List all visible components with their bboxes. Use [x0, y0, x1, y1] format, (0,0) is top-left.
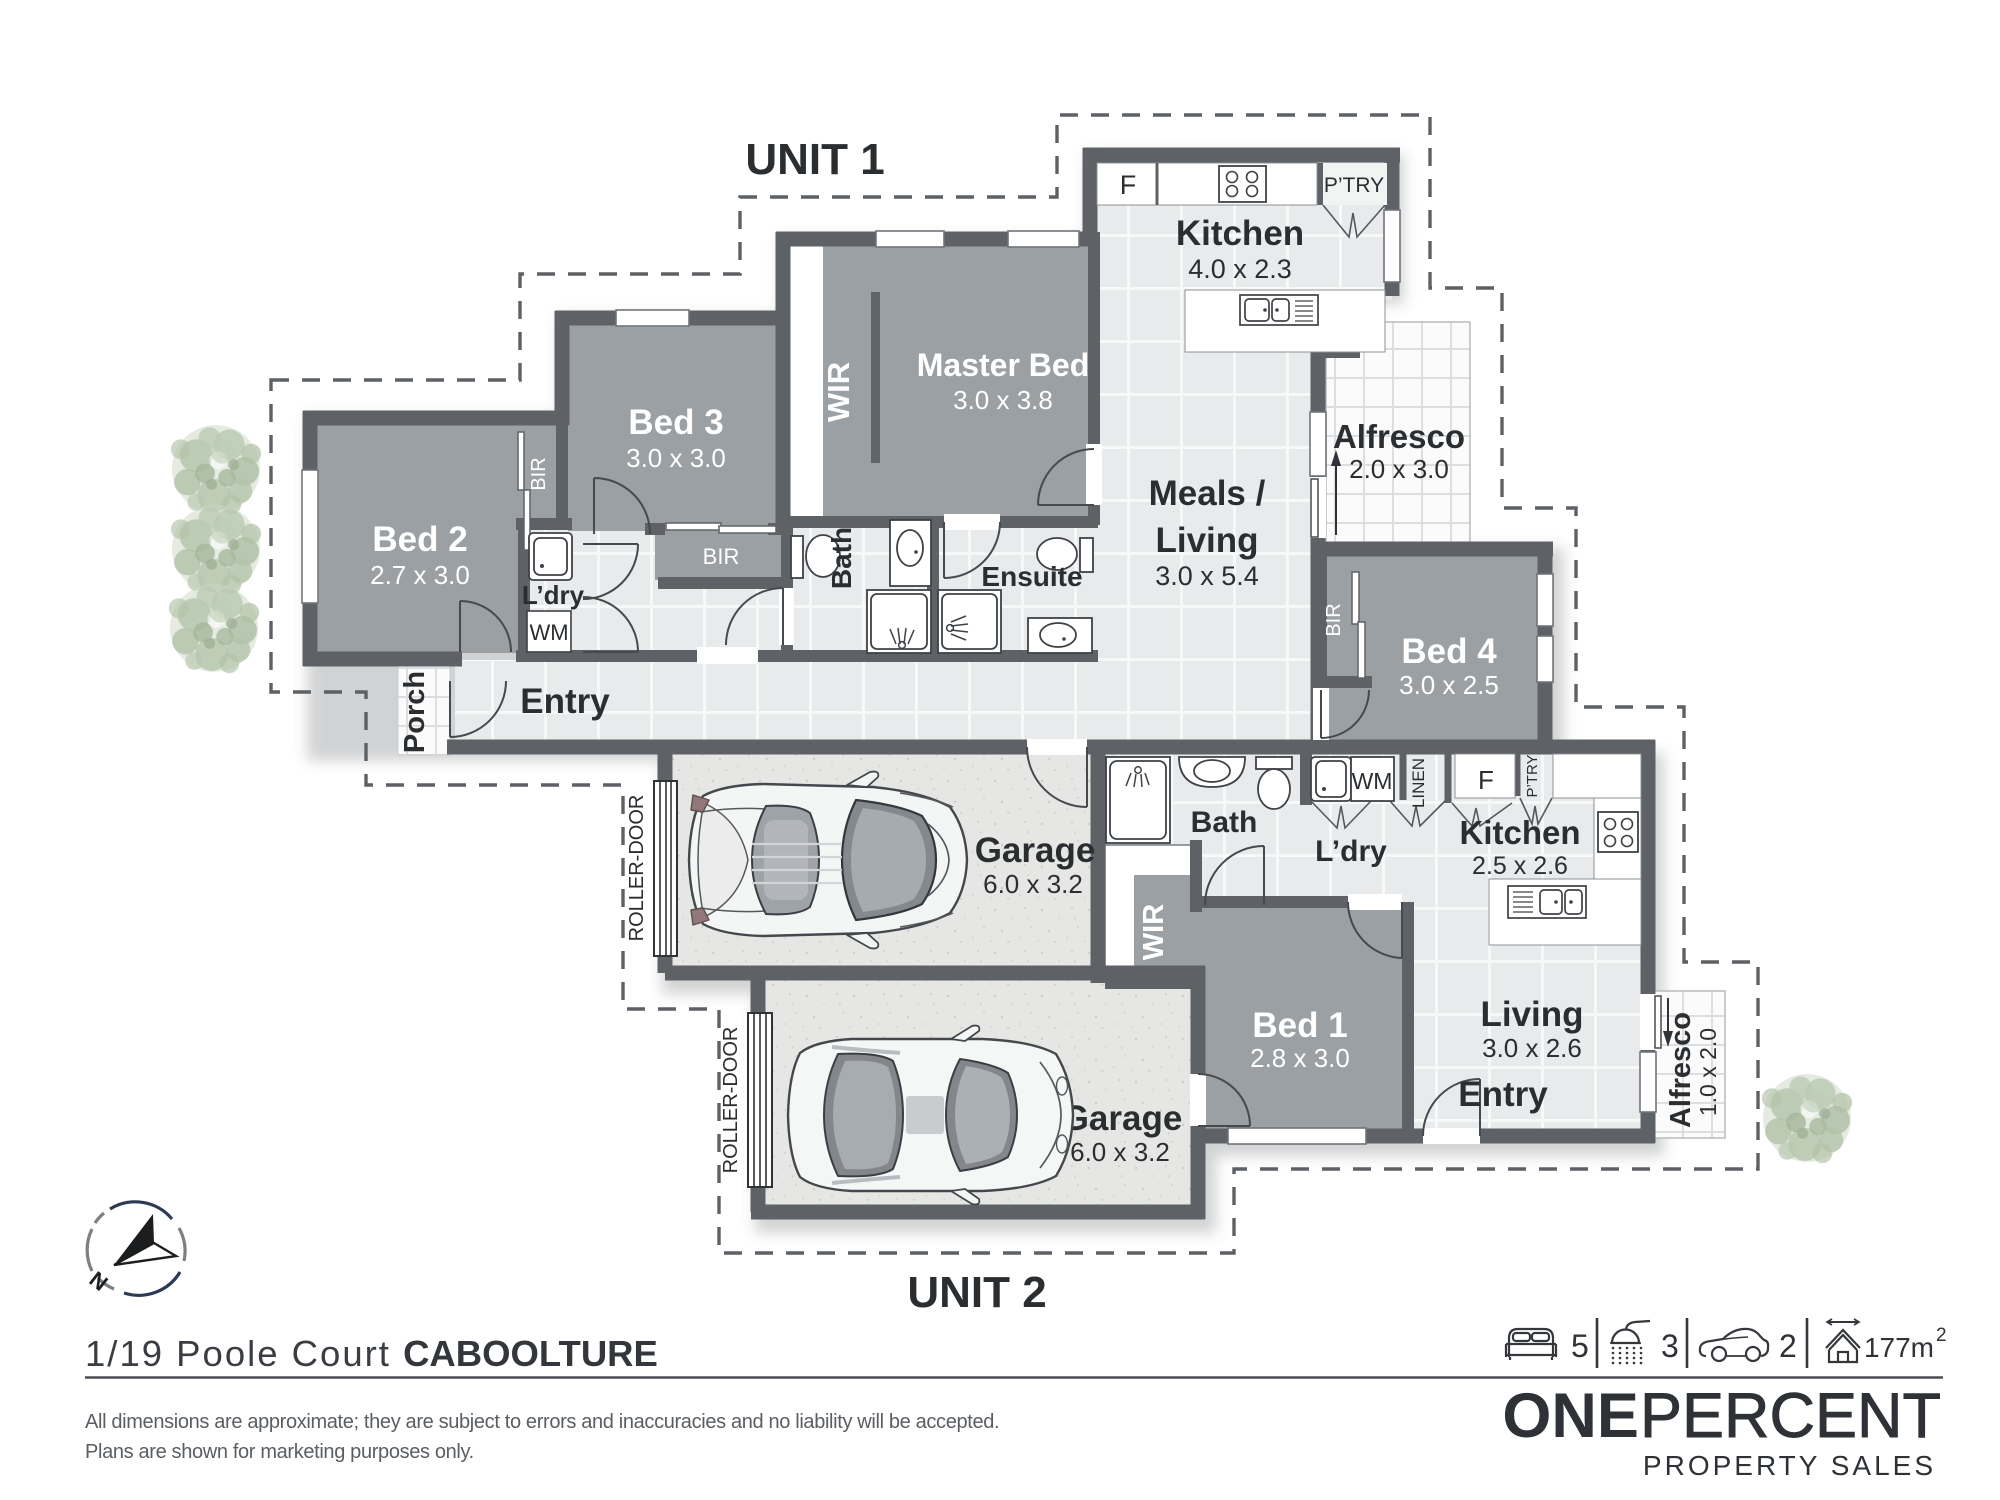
svg-text:ROLLER-DOOR: ROLLER-DOOR [720, 1027, 742, 1174]
svg-text:3.0 x 3.0: 3.0 x 3.0 [626, 443, 726, 473]
svg-text:1.0 x 2.0: 1.0 x 2.0 [1695, 1028, 1721, 1116]
svg-text:3.0 x 2.5: 3.0 x 2.5 [1399, 670, 1499, 700]
svg-text:Plans are shown for marketing: Plans are shown for marketing purposes o… [85, 1441, 474, 1463]
svg-text:WIR: WIR [1138, 904, 1170, 960]
svg-text:2.0 x 3.0: 2.0 x 3.0 [1349, 454, 1449, 484]
svg-text:2.7 x 3.0: 2.7 x 3.0 [370, 560, 470, 590]
svg-text:ONEPERCENT: ONEPERCENT [1502, 1381, 1941, 1451]
svg-text:Entry: Entry [1458, 1075, 1548, 1114]
svg-text:ROLLER-DOOR: ROLLER-DOOR [626, 795, 648, 942]
svg-text:Bed 2: Bed 2 [372, 520, 467, 559]
svg-text:3.0 x 5.4: 3.0 x 5.4 [1155, 561, 1259, 591]
svg-text:Bed 3: Bed 3 [628, 403, 723, 442]
svg-text:Alfresco: Alfresco [1665, 1012, 1697, 1128]
svg-text:BIR: BIR [528, 457, 550, 490]
svg-text:WIR: WIR [821, 362, 856, 422]
svg-text:L’dry: L’dry [522, 580, 585, 610]
svg-text:Entry: Entry [520, 682, 610, 721]
svg-text:Garage: Garage [975, 831, 1096, 870]
svg-text:6.0 x 3.2: 6.0 x 3.2 [1070, 1137, 1170, 1167]
svg-text:177m: 177m [1864, 1332, 1934, 1363]
svg-text:PROPERTY SALES: PROPERTY SALES [1643, 1450, 1936, 1481]
svg-text:LINEN: LINEN [1409, 758, 1428, 808]
svg-text:P’TRY: P’TRY [1324, 174, 1384, 197]
svg-text:Kitchen: Kitchen [1459, 814, 1580, 851]
svg-text:P’TRY: P’TRY [1524, 754, 1541, 797]
svg-text:Meals /: Meals / [1149, 474, 1266, 513]
svg-text:3.0 x 3.8: 3.0 x 3.8 [953, 385, 1053, 415]
svg-text:Master Bed: Master Bed [917, 347, 1090, 383]
svg-text:Bed 4: Bed 4 [1401, 632, 1497, 671]
svg-text:3: 3 [1661, 1328, 1679, 1364]
svg-text:WM: WM [1352, 768, 1393, 794]
svg-text:UNIT 1: UNIT 1 [745, 135, 884, 184]
svg-text:UNIT 2: UNIT 2 [907, 1268, 1046, 1317]
svg-text:2: 2 [1936, 1325, 1947, 1346]
svg-text:1/19 Poole Court CABOOLTURE: 1/19 Poole Court CABOOLTURE [85, 1333, 658, 1374]
svg-text:F: F [1478, 765, 1494, 795]
svg-text:F: F [1120, 170, 1137, 200]
svg-text:All dimensions are approximate: All dimensions are approximate; they are… [85, 1411, 999, 1433]
svg-text:2.5 x 2.6: 2.5 x 2.6 [1472, 852, 1568, 880]
svg-text:3.0 x 2.6: 3.0 x 2.6 [1482, 1033, 1582, 1063]
svg-text:5: 5 [1571, 1328, 1589, 1364]
svg-text:WM: WM [529, 620, 568, 645]
svg-text:Bath: Bath [1191, 806, 1258, 839]
svg-text:Bed 1: Bed 1 [1252, 1006, 1347, 1045]
svg-text:Alfresco: Alfresco [1333, 418, 1465, 455]
svg-text:L’dry: L’dry [1315, 835, 1387, 868]
svg-text:Kitchen: Kitchen [1176, 214, 1304, 253]
svg-text:Ensuite: Ensuite [981, 561, 1082, 592]
svg-text:6.0 x 3.2: 6.0 x 3.2 [983, 869, 1083, 899]
svg-text:Bath: Bath [826, 527, 857, 589]
svg-text:Living: Living [1155, 521, 1258, 560]
svg-text:Garage: Garage [1062, 1099, 1183, 1138]
svg-text:Living: Living [1480, 995, 1583, 1034]
svg-text:2: 2 [1779, 1328, 1797, 1364]
svg-text:Porch: Porch [399, 671, 431, 753]
svg-text:BIR: BIR [1323, 603, 1345, 636]
svg-text:4.0 x 2.3: 4.0 x 2.3 [1188, 254, 1292, 284]
svg-text:BIR: BIR [703, 544, 740, 569]
svg-text:2.8 x 3.0: 2.8 x 3.0 [1250, 1043, 1350, 1073]
